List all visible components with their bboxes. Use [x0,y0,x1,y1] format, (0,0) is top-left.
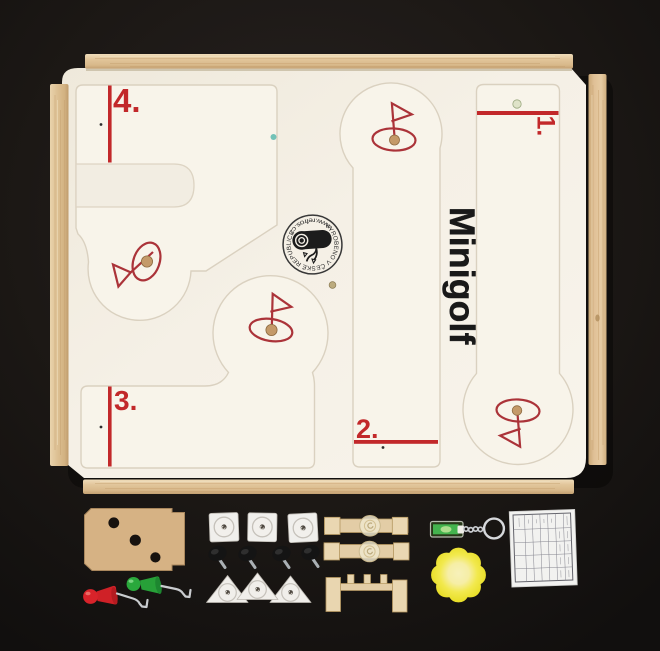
svg-text:4.: 4. [113,82,141,119]
svg-text:Minigolf: Minigolf [442,207,482,345]
svg-text:1.: 1. [532,116,560,137]
svg-text:2.: 2. [356,414,379,444]
svg-text:3.: 3. [114,385,137,416]
